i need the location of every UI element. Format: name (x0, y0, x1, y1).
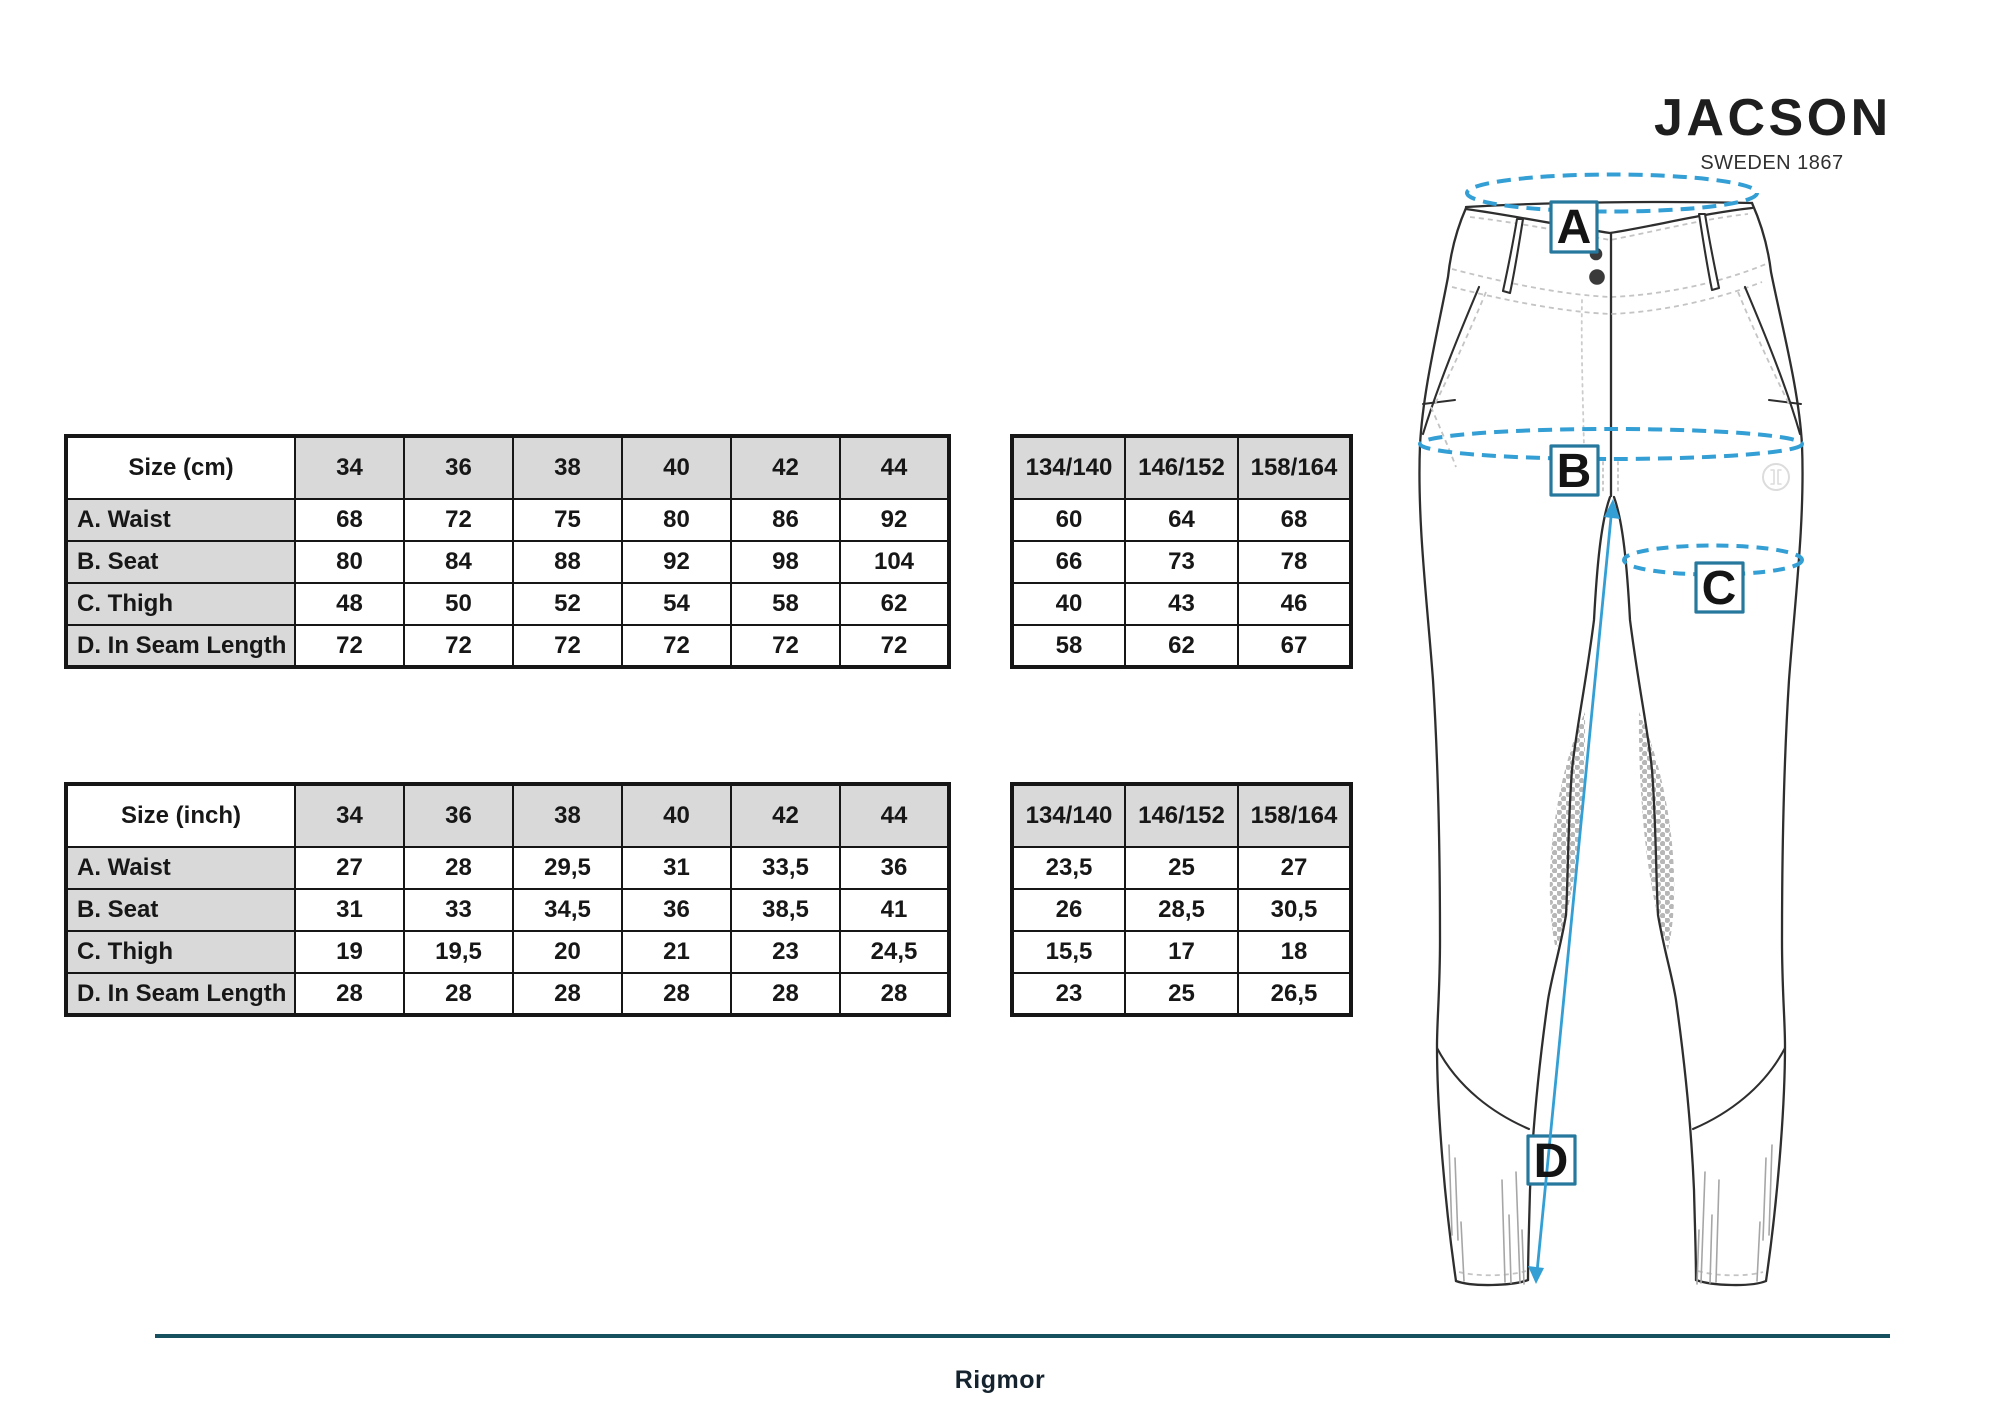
svg-text:A: A (1557, 201, 1592, 254)
svg-text:C: C (1702, 562, 1737, 615)
svg-text:D: D (1534, 1135, 1569, 1188)
svg-text:B: B (1557, 445, 1592, 498)
